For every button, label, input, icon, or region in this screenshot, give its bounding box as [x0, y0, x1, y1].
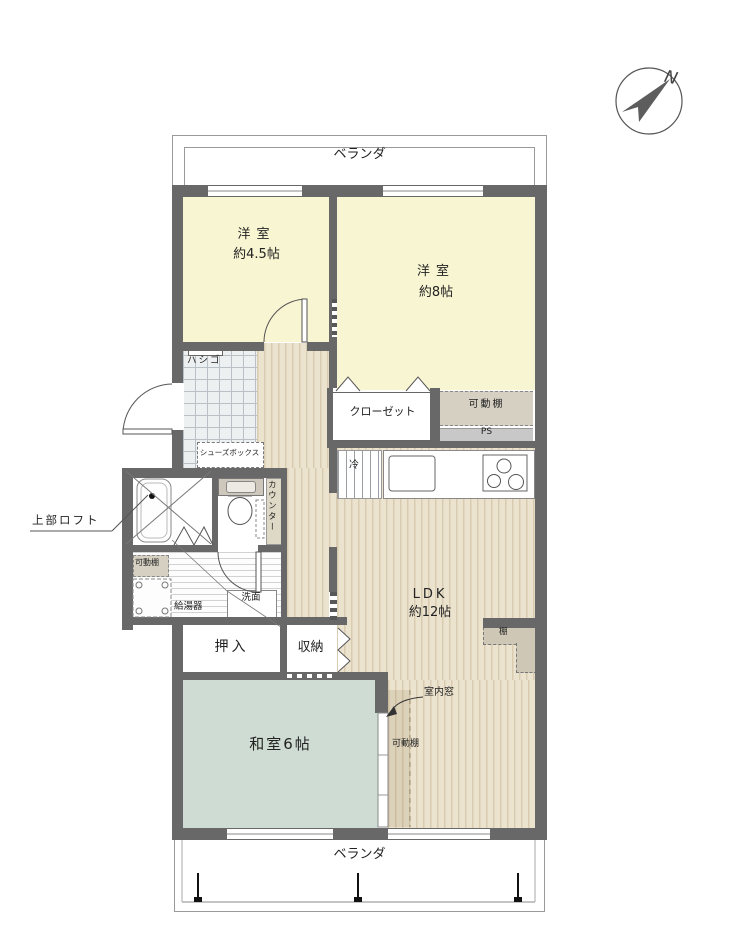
ldk-name: LDK	[350, 588, 510, 602]
window-top-left	[208, 186, 302, 196]
indoor-window-label: 室内窓	[424, 687, 454, 698]
bedroom-small-size: 約4.5帖	[183, 248, 330, 262]
kitchen-stove	[483, 455, 527, 491]
kitchen-sink	[389, 456, 435, 491]
closet-folding-doors	[336, 377, 430, 391]
shelf-label: 棚	[499, 628, 508, 637]
bathroom-folding-door	[174, 527, 213, 545]
counter-label: カウンター	[266, 480, 275, 533]
pipe-space-label: PS	[440, 428, 533, 438]
refrigerator-label: 冷	[349, 460, 359, 471]
toilet-bowl	[228, 496, 264, 538]
entrance-door	[123, 384, 172, 434]
futon-closet-label: 押入	[183, 640, 280, 655]
window-bottom-left	[227, 829, 333, 839]
window-top-right	[383, 186, 483, 196]
bathtub	[137, 479, 171, 542]
bedroom-large-size: 約8帖	[337, 286, 535, 300]
ladder-label: ハシゴ	[187, 356, 222, 366]
japanese-room-label: 和室6帖	[183, 736, 378, 753]
shoe-box-label: シューズボックス	[197, 449, 262, 457]
water-heater-label: 給湯器	[174, 602, 203, 612]
bedroom-small-door	[264, 299, 307, 342]
indoor-window-arrow	[386, 697, 423, 717]
bedroom-large-name: 洋室	[337, 265, 535, 279]
floorplan-linework	[0, 0, 729, 952]
movable-shelf-ldk-label: 可動棚	[392, 740, 419, 750]
entrance-opening	[172, 383, 184, 430]
movable-shelf-bedroom-label: 可動棚	[440, 399, 533, 410]
balcony-bottom-label: ベランダ	[172, 848, 547, 862]
bedroom-small-name: 洋室	[183, 228, 330, 242]
window-bottom-right	[388, 829, 490, 839]
storage-label: 収納	[283, 641, 338, 655]
closet-label: クローゼット	[332, 406, 433, 418]
indoor-window	[378, 713, 388, 827]
floor-plan: ベランダ N	[0, 0, 729, 952]
upper-loft-label: 上部ロフト	[32, 514, 100, 527]
washroom-door	[218, 552, 261, 592]
storage-folding-door	[338, 628, 350, 672]
ldk-size: 約12帖	[350, 606, 510, 620]
movable-shelf-washroom-label: 可動棚	[135, 559, 159, 568]
washing-machine-pan	[133, 579, 171, 617]
washbasin-label: 洗面	[227, 593, 275, 603]
washroom-leader-lines	[172, 540, 281, 627]
